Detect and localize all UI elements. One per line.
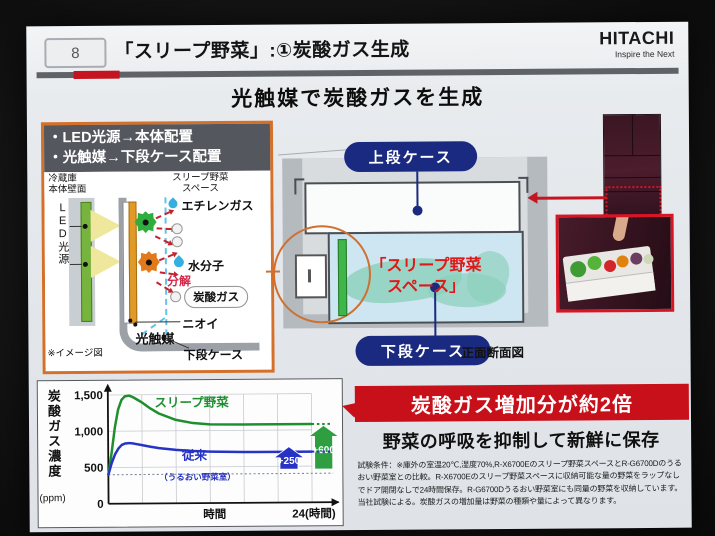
wall-label: 冷蔵庫 本体壁面: [48, 173, 86, 195]
co2-chart-panel: 炭酸ガス濃度 (ppm) 05001,0001,500時間24(時間)スリープ野…: [37, 378, 344, 528]
svg-text:1,000: 1,000: [74, 426, 103, 438]
lower-case-label: 下段ケース: [183, 345, 243, 362]
pointer-line: [416, 172, 418, 210]
vegetable-drawer-photo: [556, 214, 675, 313]
reaction-arrow-icon: [157, 227, 172, 230]
vegetable-item: [616, 255, 629, 268]
result-banner: 炭酸ガス増加分が約2倍: [355, 384, 689, 422]
chart-y-unit-label: (ppm): [40, 493, 66, 504]
led-source-label: LED光源: [54, 202, 71, 306]
svg-text:24(時間): 24(時間): [292, 506, 336, 520]
co2-line-chart: 05001,0001,500時間24(時間)スリープ野菜+600従来（うるおい野…: [64, 381, 341, 525]
hand-in-photo: [612, 214, 630, 242]
vegetable-item: [569, 260, 587, 278]
ethylene-label: エチレンガス: [181, 196, 253, 214]
photocatalyst-layer-icon: [128, 201, 137, 323]
sleep-space-label: 「スリープ野菜 スペース」: [330, 233, 523, 322]
led-point-dot: [83, 261, 88, 266]
page-title: 光触媒で炭酸ガスを生成: [27, 80, 689, 115]
water-label: 水分子: [188, 257, 224, 274]
svg-text:1,500: 1,500: [74, 390, 103, 402]
co2-label: 炭酸ガス: [184, 285, 248, 307]
upper-case-pill: 上段ケース: [344, 141, 477, 172]
led-light-beam-icon: [91, 209, 121, 241]
open-drawer: [563, 246, 656, 301]
svg-text:従来: 従来: [181, 448, 208, 463]
test-conditions-fine-print: 試験条件：※庫外の室温20℃,湿度70%,R-X6700Eのスリープ野菜スペース…: [357, 458, 687, 510]
point-dot: [128, 318, 132, 322]
decompose-label: 分解: [167, 272, 191, 289]
tray-hook: [518, 177, 528, 193]
gas-molecule-icon: [172, 236, 183, 247]
vegetable-item: [603, 259, 616, 272]
slide-header: 8 「スリープ野菜」:①炭酸ガス生成 HITACHI Inspire the N…: [26, 26, 688, 71]
bullet-led: ・LED光源→本体配置: [48, 127, 266, 149]
connector-line: [70, 264, 82, 265]
door-seam: [632, 115, 633, 155]
mechanism-diagram: 冷蔵庫 本体壁面 スリープ野菜 スペース LED光源: [44, 170, 271, 368]
led-light-beam-icon: [91, 245, 121, 277]
space-label: スリープ野菜 スペース: [144, 172, 256, 195]
svg-text:時間: 時間: [203, 507, 226, 521]
mechanism-panel: ・LED光源→本体配置 ・光触媒→下段ケース配置 冷蔵庫 本体壁面 スリープ野菜…: [41, 121, 275, 375]
image-note: ※イメージ図: [47, 348, 102, 359]
vegetable-item: [630, 252, 643, 265]
mechanism-panel-header: ・LED光源→本体配置 ・光触媒→下段ケース配置: [44, 124, 270, 172]
vegetable-item: [587, 255, 603, 271]
drawer-pointer-arrow-icon: [536, 196, 606, 199]
cross-section-diagram: 「スリープ野菜 スペース」 上段ケース 下段ケース 正面断面図: [282, 135, 549, 373]
door-seam: [604, 155, 660, 156]
gas-molecule-icon: [172, 223, 183, 234]
svg-text:0: 0: [97, 499, 103, 511]
slide-number-box: 8: [44, 38, 106, 68]
vegetable-item: [643, 253, 654, 264]
point-dot: [133, 322, 137, 326]
bullet-photocatalyst: ・光触媒→下段ケース配置: [48, 147, 266, 169]
slide-title: 「スリープ野菜」:①炭酸ガス生成: [114, 35, 409, 64]
connector-line: [70, 226, 82, 227]
led-point-dot: [83, 223, 88, 228]
pointer-dot: [413, 206, 423, 216]
chart-y-axis-label: 炭酸ガス濃度: [44, 389, 64, 493]
odor-label: ニオイ: [182, 315, 218, 332]
svg-text:+250: +250: [278, 456, 301, 467]
tray-hook: [294, 178, 304, 194]
hitachi-logo: HITACHI: [599, 29, 674, 48]
photocatalyst-label: 光触媒: [135, 328, 174, 347]
cross-section-caption: 正面断面図: [461, 342, 524, 361]
panel-connector-line: [266, 271, 280, 273]
presentation-slide: 8 「スリープ野菜」:①炭酸ガス生成 HITACHI Inspire the N…: [26, 22, 692, 533]
photo-background: 8 「スリープ野菜」:①炭酸ガス生成 HITACHI Inspire the N…: [0, 0, 715, 536]
svg-text:500: 500: [84, 463, 103, 475]
brand-block: HITACHI Inspire the Next: [599, 29, 674, 60]
brand-tagline: Inspire the Next: [599, 49, 674, 60]
gas-molecule-icon: [170, 291, 181, 302]
svg-text:（うるおい野菜室）: （うるおい野菜室）: [159, 472, 236, 483]
svg-text:スリープ野菜: スリープ野菜: [154, 394, 229, 410]
lower-case-tray: 「スリープ野菜 スペース」: [328, 231, 525, 324]
divider-red-segment: [74, 71, 120, 79]
door-seam: [604, 177, 660, 178]
result-subtitle: 野菜の呼吸を抑制して新鮮に保存: [351, 426, 691, 454]
